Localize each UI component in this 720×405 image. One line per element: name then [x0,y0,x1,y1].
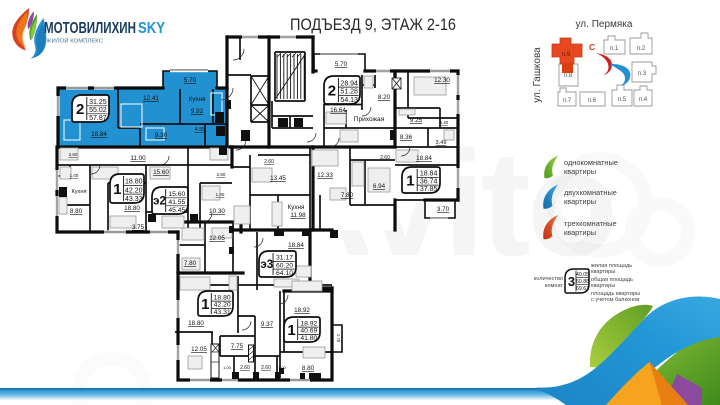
svg-text:37.85: 37.85 [420,186,438,193]
svg-text:п.3: п.3 [638,70,647,77]
svg-text:11.98: 11.98 [290,212,306,219]
svg-text:6.94: 6.94 [373,183,386,190]
svg-text:квартиры: квартиры [591,283,615,289]
svg-text:1: 1 [406,172,414,189]
svg-text:SKY: SKY [138,20,165,37]
svg-text:1.00: 1.00 [216,192,225,197]
svg-text:12.30: 12.30 [434,77,450,84]
svg-text:41.80: 41.80 [300,335,317,342]
svg-text:69.63: 69.63 [576,286,589,292]
svg-text:2.60: 2.60 [264,159,274,165]
svg-text:2: 2 [328,82,336,99]
svg-text:2.60: 2.60 [261,365,271,371]
svg-text:12.41: 12.41 [143,95,159,102]
svg-text:квартиры: квартиры [564,197,596,206]
svg-text:12.33: 12.33 [317,172,333,179]
svg-text:51.28: 51.28 [340,89,358,96]
svg-text:13.45: 13.45 [270,175,286,182]
svg-text:42.20: 42.20 [214,302,231,309]
svg-text:п.2: п.2 [637,45,646,52]
svg-text:1.00: 1.00 [223,365,232,370]
svg-text:64.10: 64.10 [276,270,293,277]
svg-text:45.45: 45.45 [168,207,185,214]
svg-text:с учетом балконов: с учетом балконов [591,297,639,303]
svg-text:55.02: 55.02 [89,107,107,114]
svg-text:57.87: 57.87 [89,115,107,122]
svg-text:п.8: п.8 [564,72,573,79]
svg-text:18.84: 18.84 [420,171,438,178]
svg-text:квартиры: квартиры [591,269,615,275]
svg-text:1.00: 1.00 [70,173,79,178]
svg-text:3.49: 3.49 [436,140,447,146]
svg-text:36.74: 36.74 [420,178,438,185]
svg-text:1: 1 [201,296,209,313]
svg-text:п.4: п.4 [639,96,648,103]
svg-text:1.00: 1.00 [278,365,287,370]
svg-text:40.05: 40.05 [576,272,589,278]
svg-text:16.64: 16.64 [330,107,346,114]
svg-text:ул. Гашкова: ул. Гашкова [532,47,543,103]
svg-text:15.60: 15.60 [168,191,185,198]
svg-text:18.84: 18.84 [416,155,432,162]
svg-text:1: 1 [113,181,121,198]
svg-text:8.36: 8.36 [400,134,413,141]
svg-text:2: 2 [76,101,84,118]
svg-text:3.75: 3.75 [132,224,145,231]
svg-text:7.75: 7.75 [231,343,244,350]
svg-text:18.80: 18.80 [124,205,140,212]
svg-text:42.20: 42.20 [125,187,143,194]
svg-text:п.1: п.1 [610,45,619,52]
svg-text:3: 3 [568,274,575,289]
svg-text:60.20: 60.20 [276,262,293,269]
svg-text:8.20: 8.20 [378,94,391,101]
svg-text:трехкомнатные: трехкомнатные [564,219,617,228]
svg-text:3.70: 3.70 [437,206,450,213]
svg-text:5.70: 5.70 [184,77,197,84]
svg-text:4.55: 4.55 [195,127,206,133]
svg-text:двухкомнатные: двухкомнатные [564,188,617,197]
svg-text:54.13: 54.13 [340,97,358,104]
svg-text:43.31: 43.31 [214,309,231,316]
svg-text:43.33: 43.33 [125,196,143,203]
svg-text:12.05: 12.05 [191,346,207,353]
svg-text:15.60: 15.60 [153,169,169,176]
svg-text:2.60: 2.60 [240,365,250,371]
svg-text:41.55: 41.55 [168,199,185,206]
svg-text:количество: количество [534,276,563,282]
svg-text:п.9: п.9 [562,51,571,58]
svg-text:5.70: 5.70 [335,61,348,68]
svg-text:8.80: 8.80 [302,365,315,372]
svg-text:ул. Пермяка: ул. Пермяка [576,19,633,30]
svg-text:12.05: 12.05 [209,235,225,242]
svg-text:Кухня: Кухня [72,189,87,195]
svg-text:Кухня: Кухня [288,204,305,211]
svg-text:18.84: 18.84 [91,131,107,138]
svg-text:п.7: п.7 [563,97,572,104]
svg-text:18.84: 18.84 [288,242,304,249]
svg-text:2.60: 2.60 [380,155,390,161]
svg-text:9.25: 9.25 [410,117,423,124]
svg-text:7.80: 7.80 [184,260,197,267]
svg-text:18.80: 18.80 [188,320,204,327]
svg-text:э2: э2 [153,196,166,208]
svg-text:10.30: 10.30 [209,208,225,215]
svg-text:Прихожая: Прихожая [354,116,385,123]
svg-text:2.60: 2.60 [69,152,78,157]
svg-text:31.25: 31.25 [89,99,107,106]
svg-text:31.17: 31.17 [276,255,293,262]
svg-text:квартиры: квартиры [564,167,596,176]
svg-text:18.80: 18.80 [214,294,231,301]
svg-text:Кухня: Кухня [189,96,206,103]
svg-text:9.37: 9.37 [261,321,274,328]
svg-text:11.00: 11.00 [130,155,146,162]
svg-text:7.80: 7.80 [341,192,354,199]
svg-text:п.6: п.6 [588,97,597,104]
svg-text:9.92: 9.92 [191,108,204,115]
svg-text:1.40: 1.40 [440,120,449,125]
svg-text:40.69: 40.69 [300,328,317,335]
svg-text:комнат: комнат [545,283,564,289]
svg-text:9.30: 9.30 [155,132,168,139]
svg-text:18.92: 18.92 [294,307,310,314]
svg-text:1.70: 1.70 [336,334,341,343]
svg-text:квартиры: квартиры [564,228,596,237]
svg-text:однокомнатные: однокомнатные [564,158,618,167]
svg-text:2.60: 2.60 [217,172,226,177]
svg-text:28.94: 28.94 [340,80,358,87]
svg-text:МОТОВИЛИХИН: МОТОВИЛИХИН [44,20,136,37]
svg-text:8.80: 8.80 [70,208,83,215]
svg-text:ЖИЛОЙ КОМПЛЕКС: ЖИЛОЙ КОМПЛЕКС [46,37,103,45]
svg-text:э3: э3 [260,259,273,271]
svg-text:п.5: п.5 [618,96,627,103]
svg-text:18.92: 18.92 [300,320,317,327]
svg-text:ПОДЪЕЗД 9, ЭТАЖ 2-16: ПОДЪЕЗД 9, ЭТАЖ 2-16 [290,16,456,34]
svg-text:1: 1 [287,322,295,339]
svg-text:18.80: 18.80 [125,179,143,186]
svg-text:С: С [589,42,595,52]
svg-text:60.88: 60.88 [576,279,589,285]
